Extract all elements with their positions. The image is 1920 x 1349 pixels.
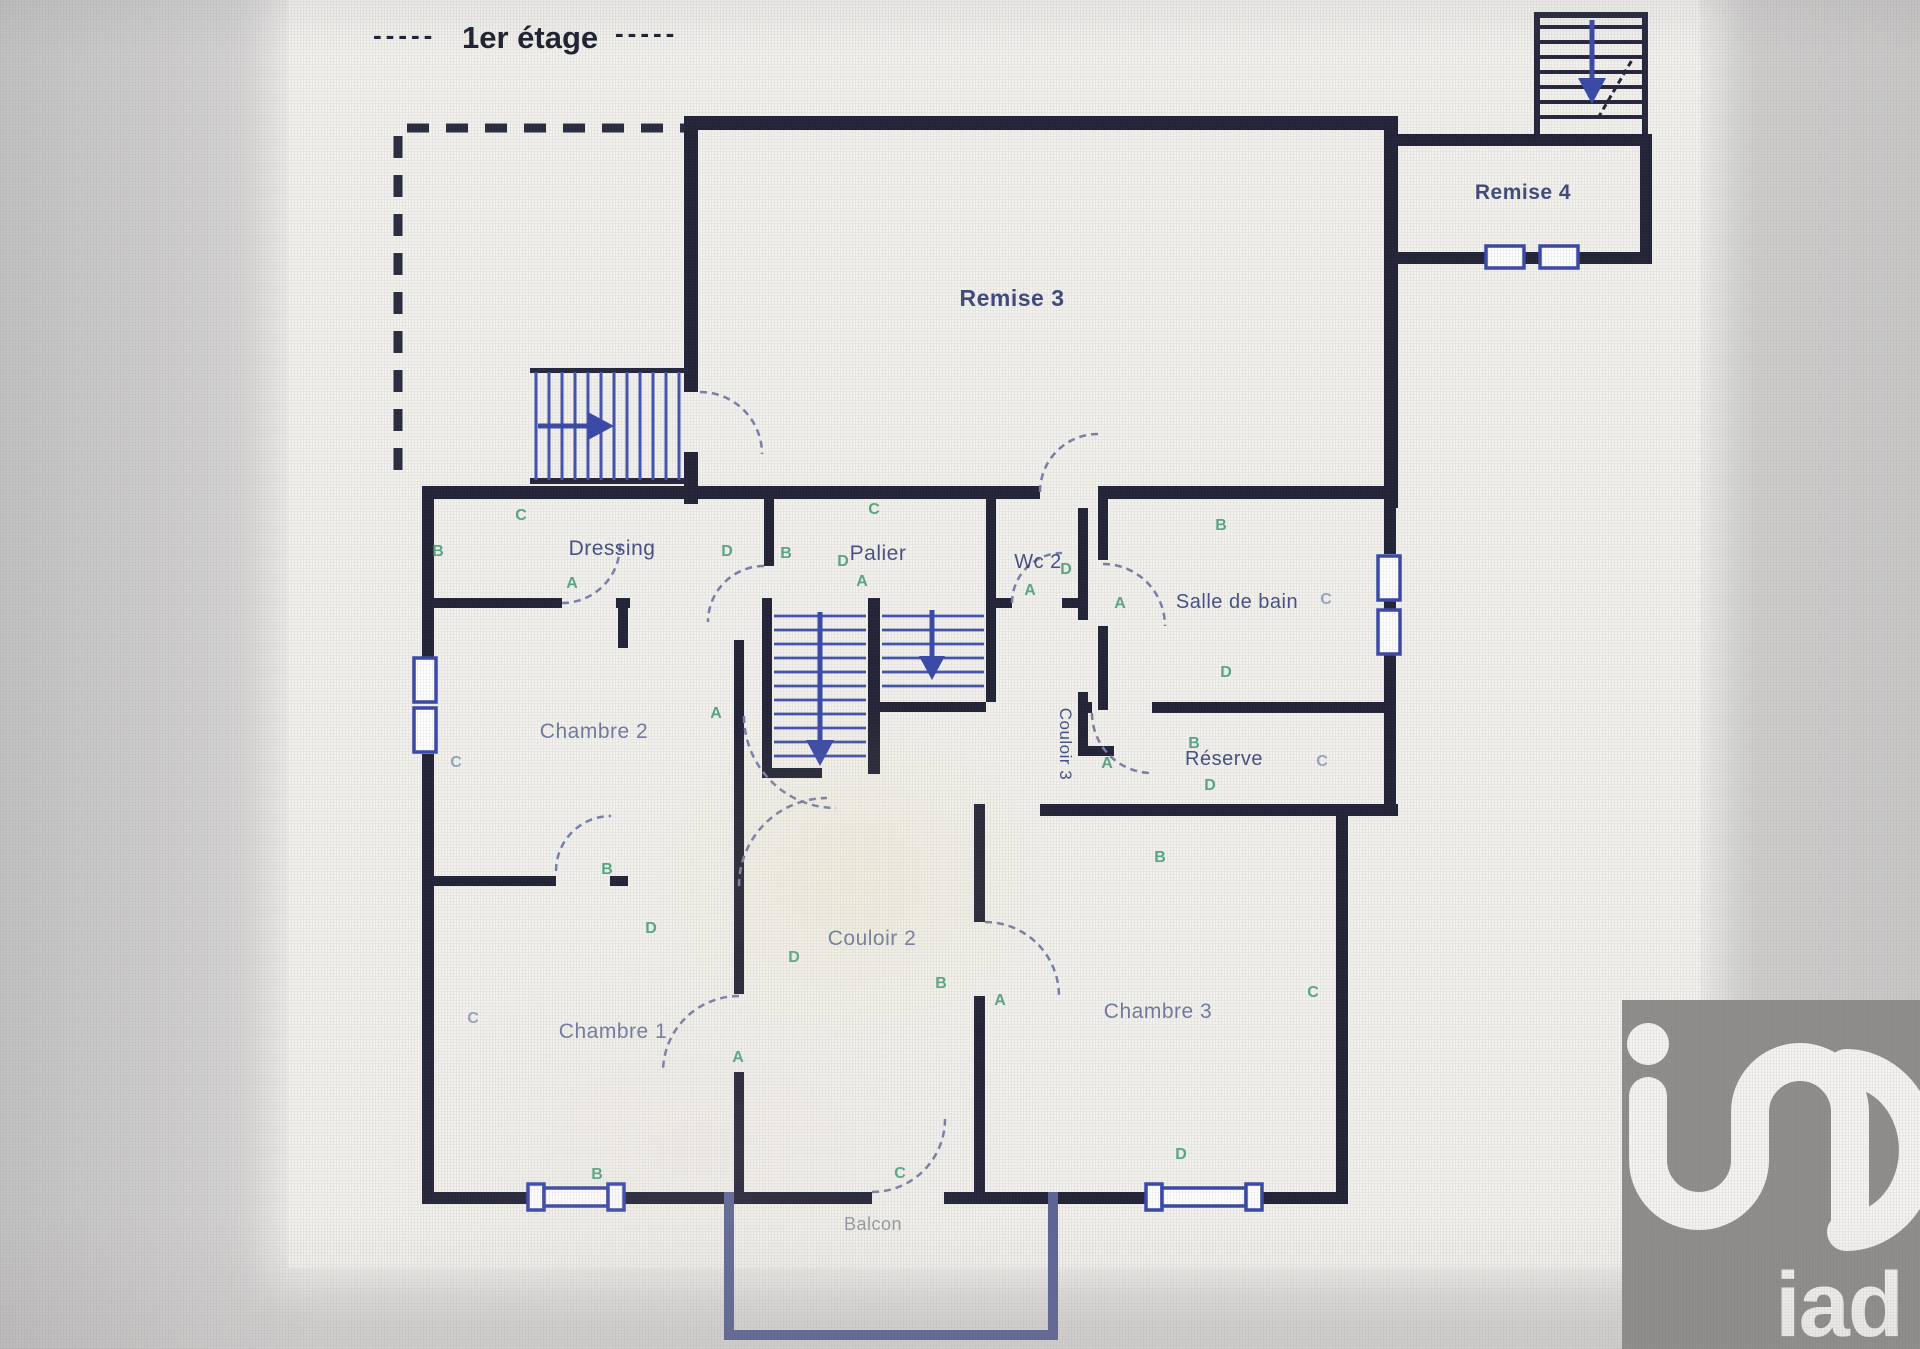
room-label-couloir-3: Couloir 3 <box>1056 708 1075 781</box>
marker: D <box>721 543 733 560</box>
page-title: 1er étage <box>462 20 598 55</box>
marker: C <box>894 1165 906 1182</box>
room-label-remise-4: Remise 4 <box>1475 181 1571 204</box>
marker: B <box>1215 517 1227 534</box>
marker: A <box>1101 755 1113 772</box>
marker: D <box>1204 777 1216 794</box>
marker: B <box>1154 849 1166 866</box>
marker: B <box>780 545 792 562</box>
marker: D <box>1060 561 1072 578</box>
marker: A <box>1024 582 1036 599</box>
marker: A <box>856 573 868 590</box>
marker: B <box>591 1166 603 1183</box>
logo-text: iad <box>1775 1254 1902 1349</box>
screen-photo: Remise 3 Remise 4 Dressing Palier Wc 2 S… <box>0 0 1920 1349</box>
marker: C <box>467 1010 479 1027</box>
title-dashes-left: ----- <box>373 20 436 50</box>
room-label-palier: Palier <box>850 542 907 565</box>
room-label-chambre-3: Chambre 3 <box>1104 1000 1212 1023</box>
marker: B <box>935 975 947 992</box>
marker: C <box>1316 753 1328 770</box>
marker: C <box>515 507 527 524</box>
marker: C <box>1320 591 1332 608</box>
room-label-salle-de-bain: Salle de bain <box>1176 591 1298 613</box>
marker: B <box>1188 735 1200 752</box>
marker: D <box>1175 1146 1187 1163</box>
marker: C <box>450 754 462 771</box>
marker: D <box>837 553 849 570</box>
staircase-top-right <box>1534 12 1648 134</box>
marker: D <box>788 949 800 966</box>
marker: C <box>1307 984 1319 1001</box>
marker: A <box>994 992 1006 1009</box>
logo-i-dot <box>1627 1023 1669 1065</box>
room-label-balcon: Balcon <box>844 1214 902 1234</box>
marker: A <box>710 705 722 722</box>
marker: C <box>868 501 880 518</box>
room-label-remise-3: Remise 3 <box>959 285 1064 311</box>
marker: B <box>432 543 444 560</box>
marker: A <box>1114 595 1126 612</box>
floor-plan: Remise 3 Remise 4 Dressing Palier Wc 2 S… <box>0 0 1920 1349</box>
staircase-left <box>530 368 688 484</box>
room-label-chambre-1: Chambre 1 <box>559 1020 667 1043</box>
marker: A <box>566 575 578 592</box>
title-dashes-right: ----- <box>615 18 678 48</box>
room-label-dressing: Dressing <box>569 537 656 560</box>
room-label-couloir-2: Couloir 2 <box>828 927 917 950</box>
marker: A <box>732 1049 744 1066</box>
room-label-wc-2: Wc 2 <box>1014 551 1062 573</box>
marker: D <box>1220 664 1232 681</box>
door-arcs <box>556 392 1165 1192</box>
marker: D <box>645 920 657 937</box>
room-label-chambre-2: Chambre 2 <box>540 720 648 743</box>
marker: B <box>601 861 613 878</box>
plan-title: ----- 1er étage ----- <box>373 18 678 55</box>
iad-logo: iad <box>1622 1000 1920 1349</box>
